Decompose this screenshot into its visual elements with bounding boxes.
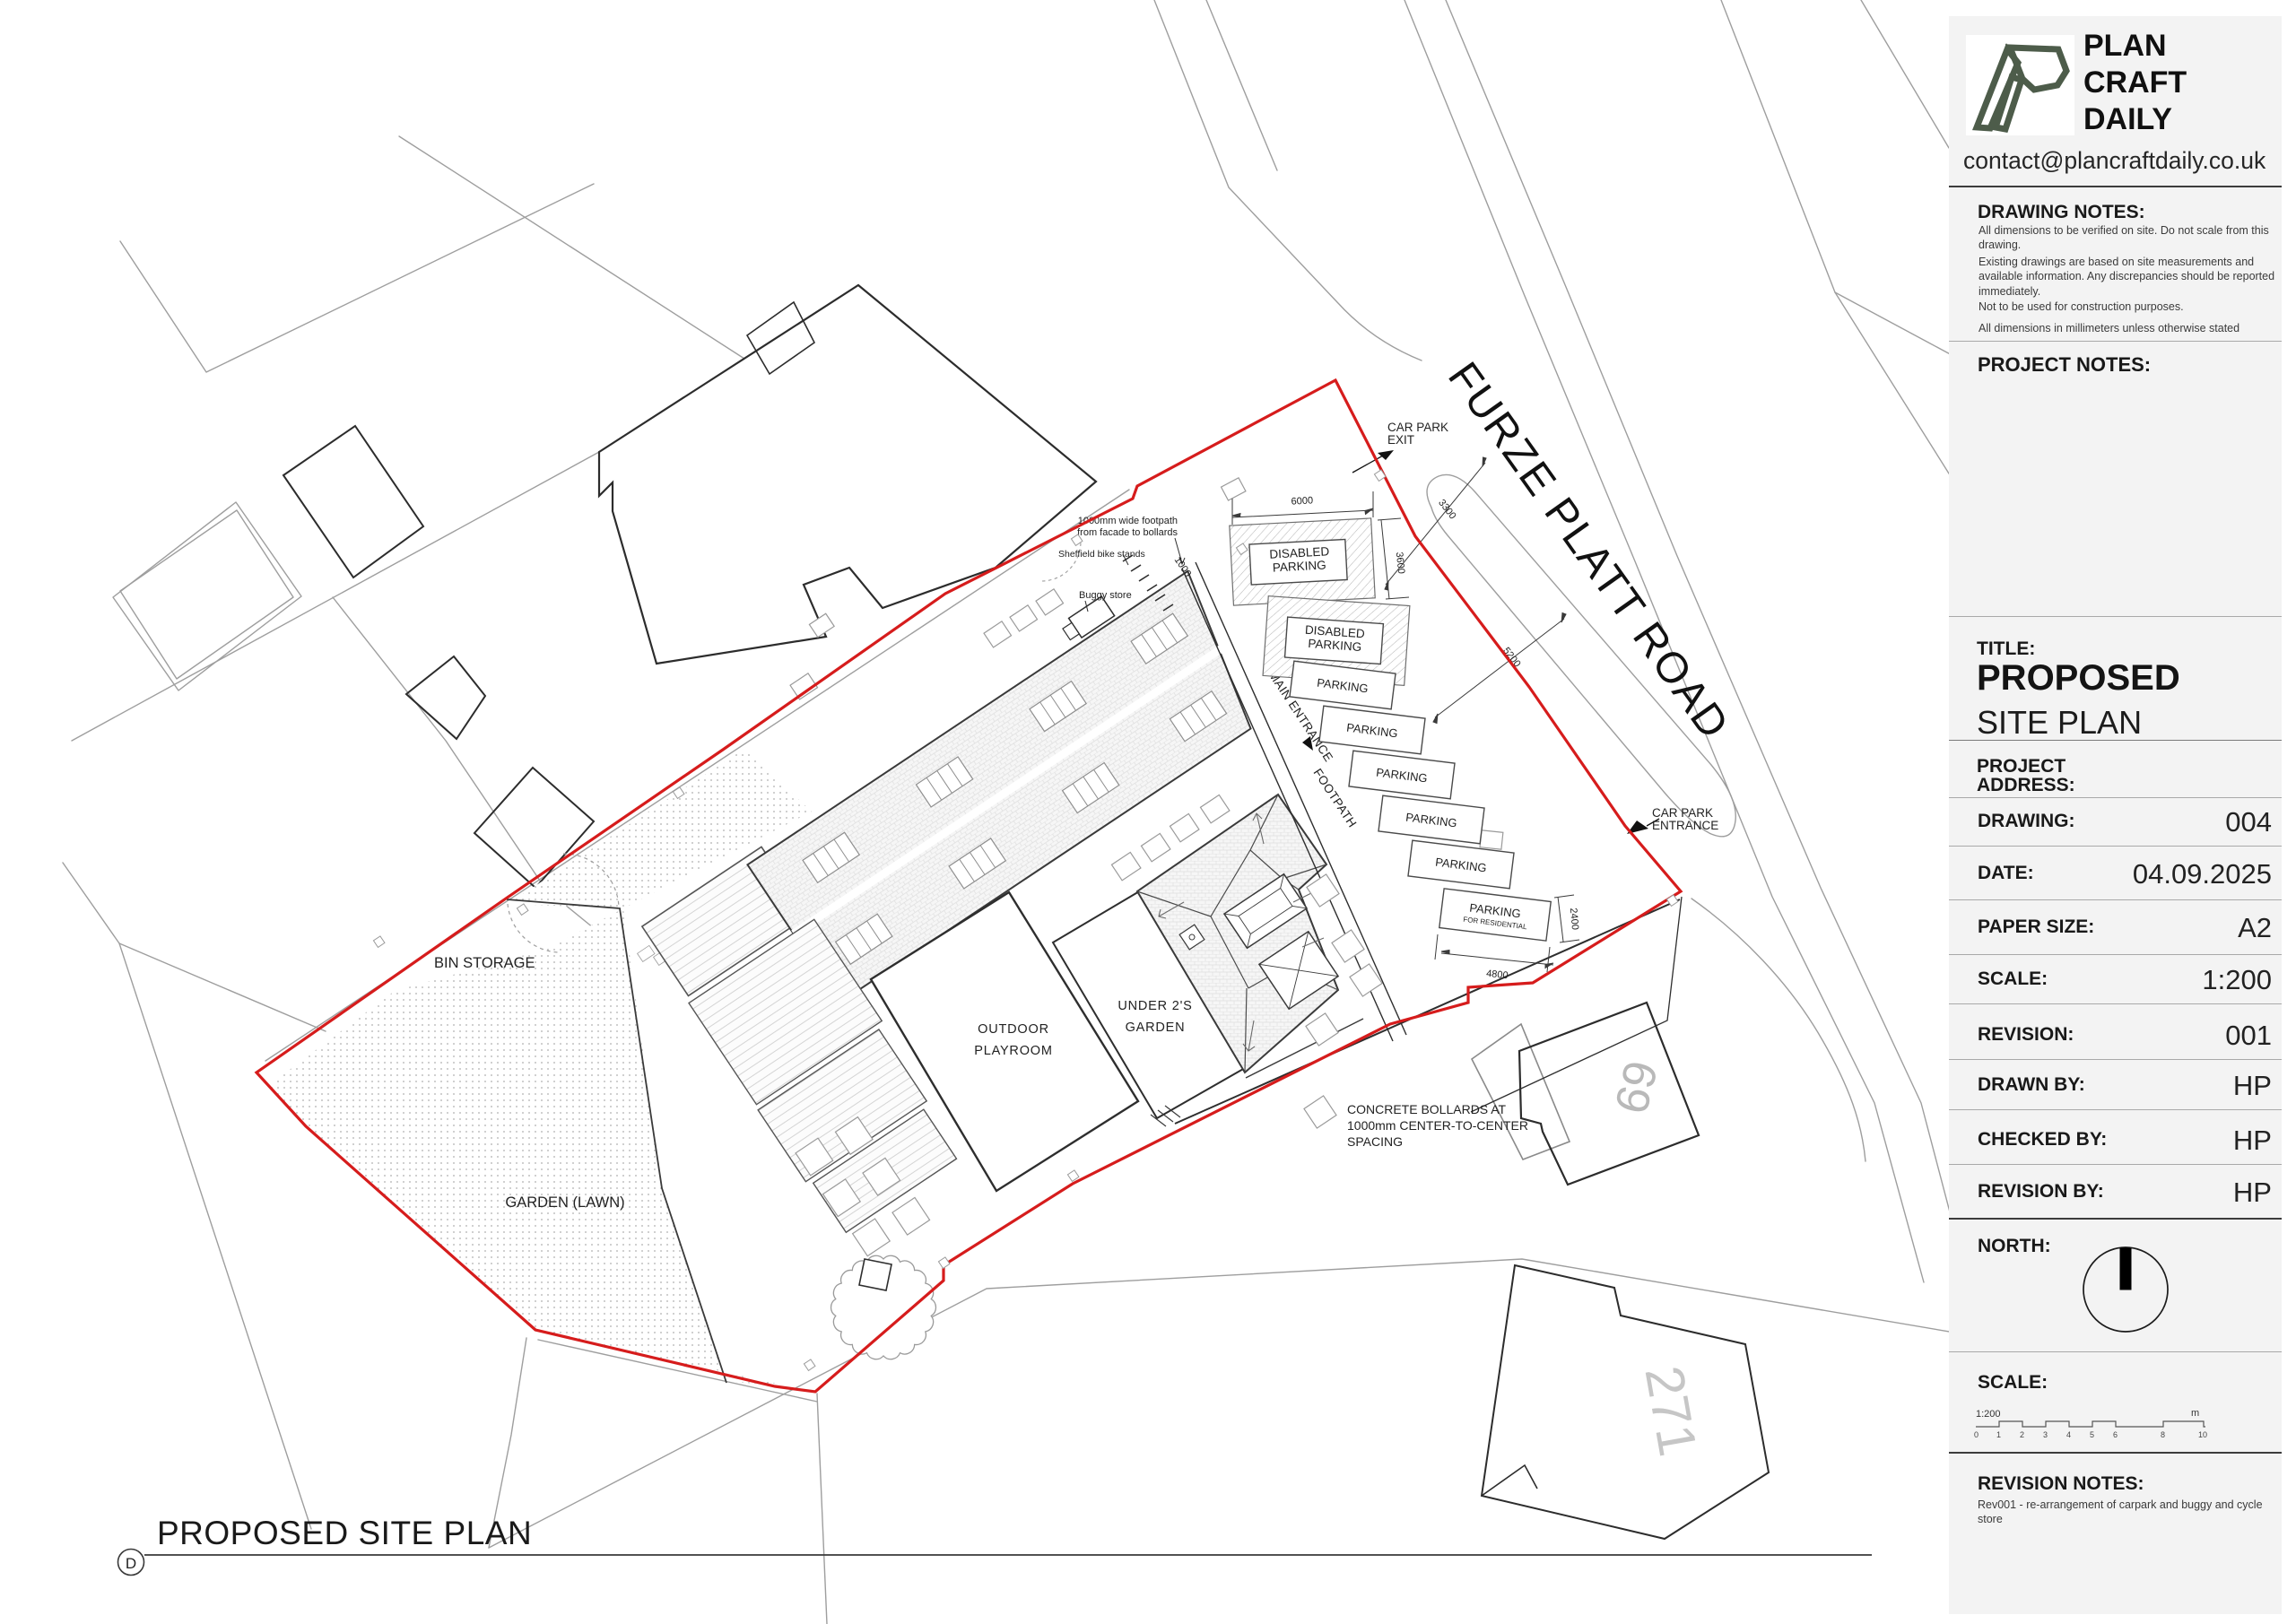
svg-text:UNDER 2'S: UNDER 2'S — [1118, 999, 1192, 1013]
svg-text:PLAYROOM: PLAYROOM — [974, 1044, 1053, 1058]
svg-text:4800: 4800 — [1486, 968, 1509, 981]
svg-text:from facade to bollards: from facade to bollards — [1077, 527, 1178, 538]
svg-text:BIN STORAGE: BIN STORAGE — [434, 955, 535, 971]
svg-text:ENTRANCE: ENTRANCE — [1652, 819, 1718, 832]
svg-text:PROPOSED SITE PLAN: PROPOSED SITE PLAN — [157, 1515, 532, 1551]
svg-text:EXIT: EXIT — [1387, 433, 1414, 447]
svg-text:1:200: 1:200 — [1976, 1409, 2001, 1420]
svg-text:5: 5 — [2090, 1430, 2094, 1439]
svg-text:CAR PARK: CAR PARK — [1652, 806, 1713, 820]
svg-text:8: 8 — [2161, 1430, 2165, 1439]
svg-text:CAR PARK: CAR PARK — [1387, 421, 1448, 434]
svg-text:m: m — [2191, 1408, 2199, 1419]
svg-text:3: 3 — [2043, 1430, 2048, 1439]
svg-text:1: 1 — [1996, 1430, 2001, 1439]
svg-text:GARDEN: GARDEN — [1126, 1020, 1186, 1035]
svg-text:3600: 3600 — [1394, 551, 1406, 575]
svg-text:D: D — [126, 1555, 136, 1572]
svg-text:6: 6 — [2113, 1430, 2118, 1439]
svg-text:1000mm CENTER-TO-CENTER: 1000mm CENTER-TO-CENTER — [1347, 1118, 1528, 1133]
svg-text:0: 0 — [1974, 1430, 1979, 1439]
svg-text:Sheffield bike stands: Sheffield bike stands — [1058, 549, 1145, 560]
svg-text:4: 4 — [2066, 1430, 2071, 1439]
svg-text:2: 2 — [2020, 1430, 2024, 1439]
svg-text:CONCRETE BOLLARDS AT: CONCRETE BOLLARDS AT — [1347, 1102, 1507, 1116]
svg-text:Buggy store: Buggy store — [1079, 590, 1132, 601]
svg-text:2400: 2400 — [1568, 908, 1580, 930]
svg-text:GARDEN (LAWN): GARDEN (LAWN) — [505, 1194, 624, 1211]
svg-text:1000mm wide footpath: 1000mm wide footpath — [1078, 516, 1178, 526]
svg-text:10: 10 — [2198, 1430, 2207, 1439]
svg-text:OUTDOOR: OUTDOOR — [978, 1022, 1049, 1037]
svg-text:PARKING: PARKING — [1273, 558, 1326, 574]
svg-text:SPACING: SPACING — [1347, 1134, 1403, 1149]
svg-text:6000: 6000 — [1291, 495, 1313, 507]
